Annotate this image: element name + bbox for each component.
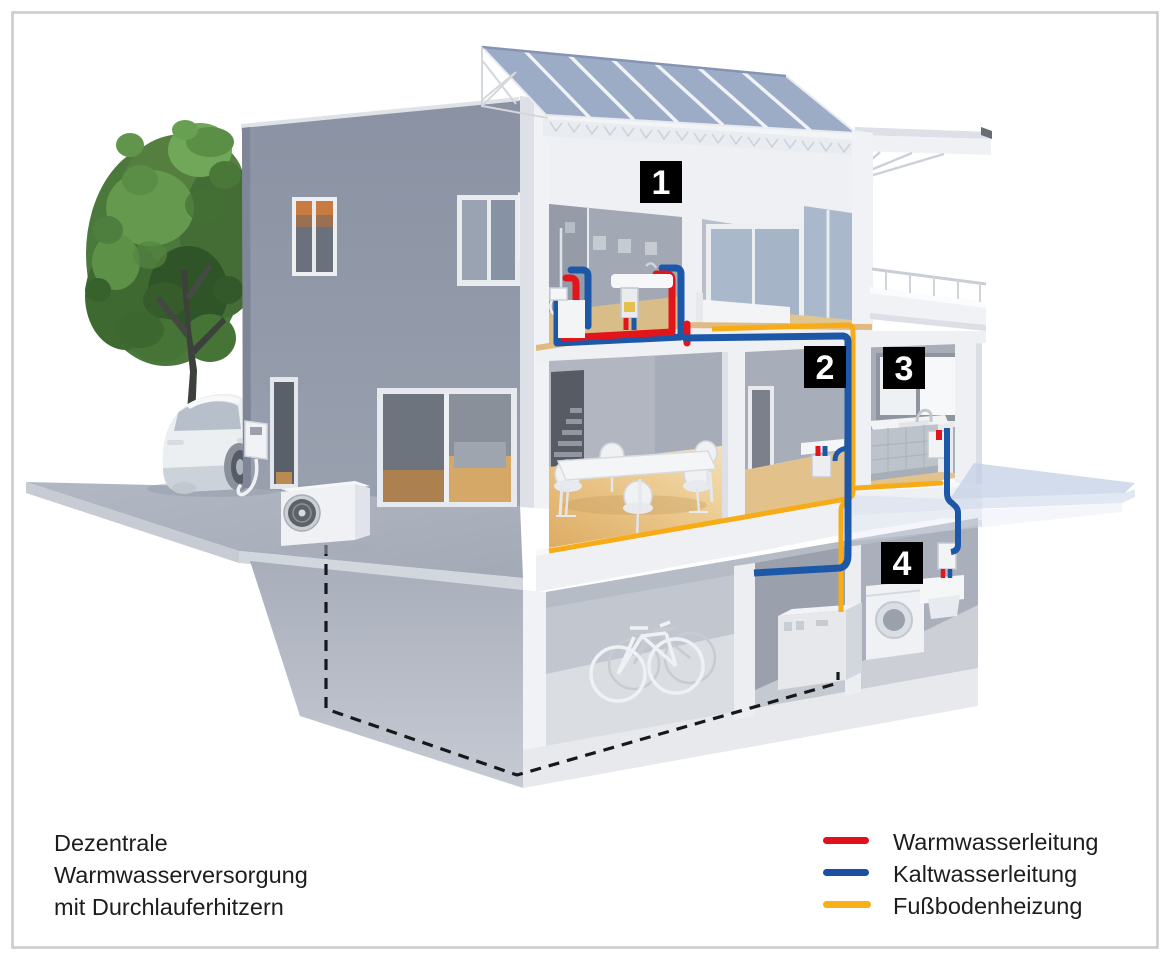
svg-text:4: 4	[893, 545, 912, 583]
svg-text:mit Durchlauferhitzern: mit Durchlauferhitzern	[54, 894, 284, 920]
svg-text:Warmwasserleitung: Warmwasserleitung	[893, 829, 1098, 855]
svg-text:3: 3	[895, 350, 914, 388]
svg-text:1: 1	[652, 164, 671, 202]
svg-text:Kaltwasserleitung: Kaltwasserleitung	[893, 861, 1077, 887]
svg-text:2: 2	[816, 349, 835, 387]
svg-text:Warmwasserversorgung: Warmwasserversorgung	[54, 862, 308, 888]
svg-text:Dezentrale: Dezentrale	[54, 830, 168, 856]
svg-text:Fußbodenheizung: Fußbodenheizung	[893, 893, 1082, 919]
